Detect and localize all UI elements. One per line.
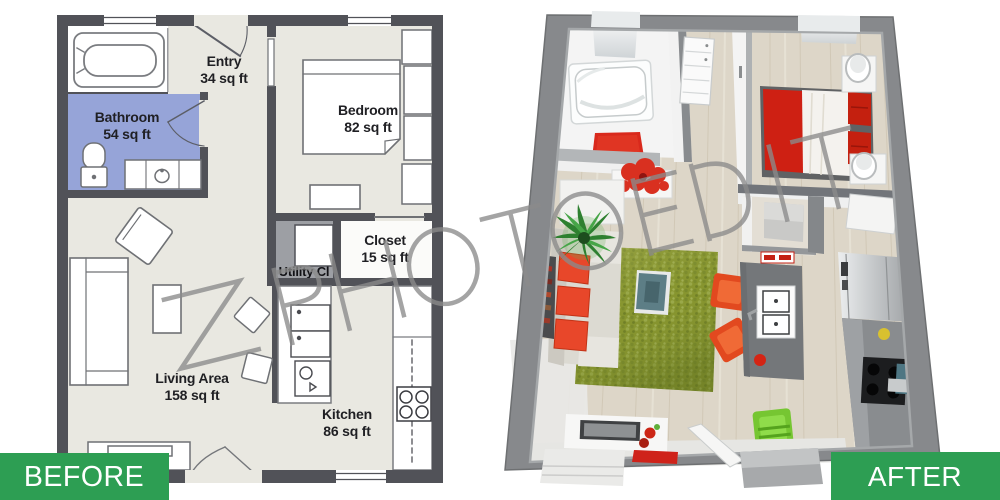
svg-text:Kitchen: Kitchen xyxy=(322,406,372,422)
svg-text:Bathroom: Bathroom xyxy=(95,109,160,125)
svg-text:82 sq ft: 82 sq ft xyxy=(344,119,392,135)
svg-text:158 sq ft: 158 sq ft xyxy=(165,387,221,403)
svg-text:Bedroom: Bedroom xyxy=(338,102,398,118)
svg-text:34 sq ft: 34 sq ft xyxy=(200,70,248,86)
svg-text:BEFORE: BEFORE xyxy=(24,461,144,493)
svg-text:15 sq ft: 15 sq ft xyxy=(361,249,409,265)
svg-text:Entry: Entry xyxy=(207,53,242,69)
svg-text:86 sq ft: 86 sq ft xyxy=(323,423,371,439)
svg-text:54 sq ft: 54 sq ft xyxy=(103,126,151,142)
svg-text:Living Area: Living Area xyxy=(155,370,229,386)
svg-text:AFTER: AFTER xyxy=(868,461,962,492)
